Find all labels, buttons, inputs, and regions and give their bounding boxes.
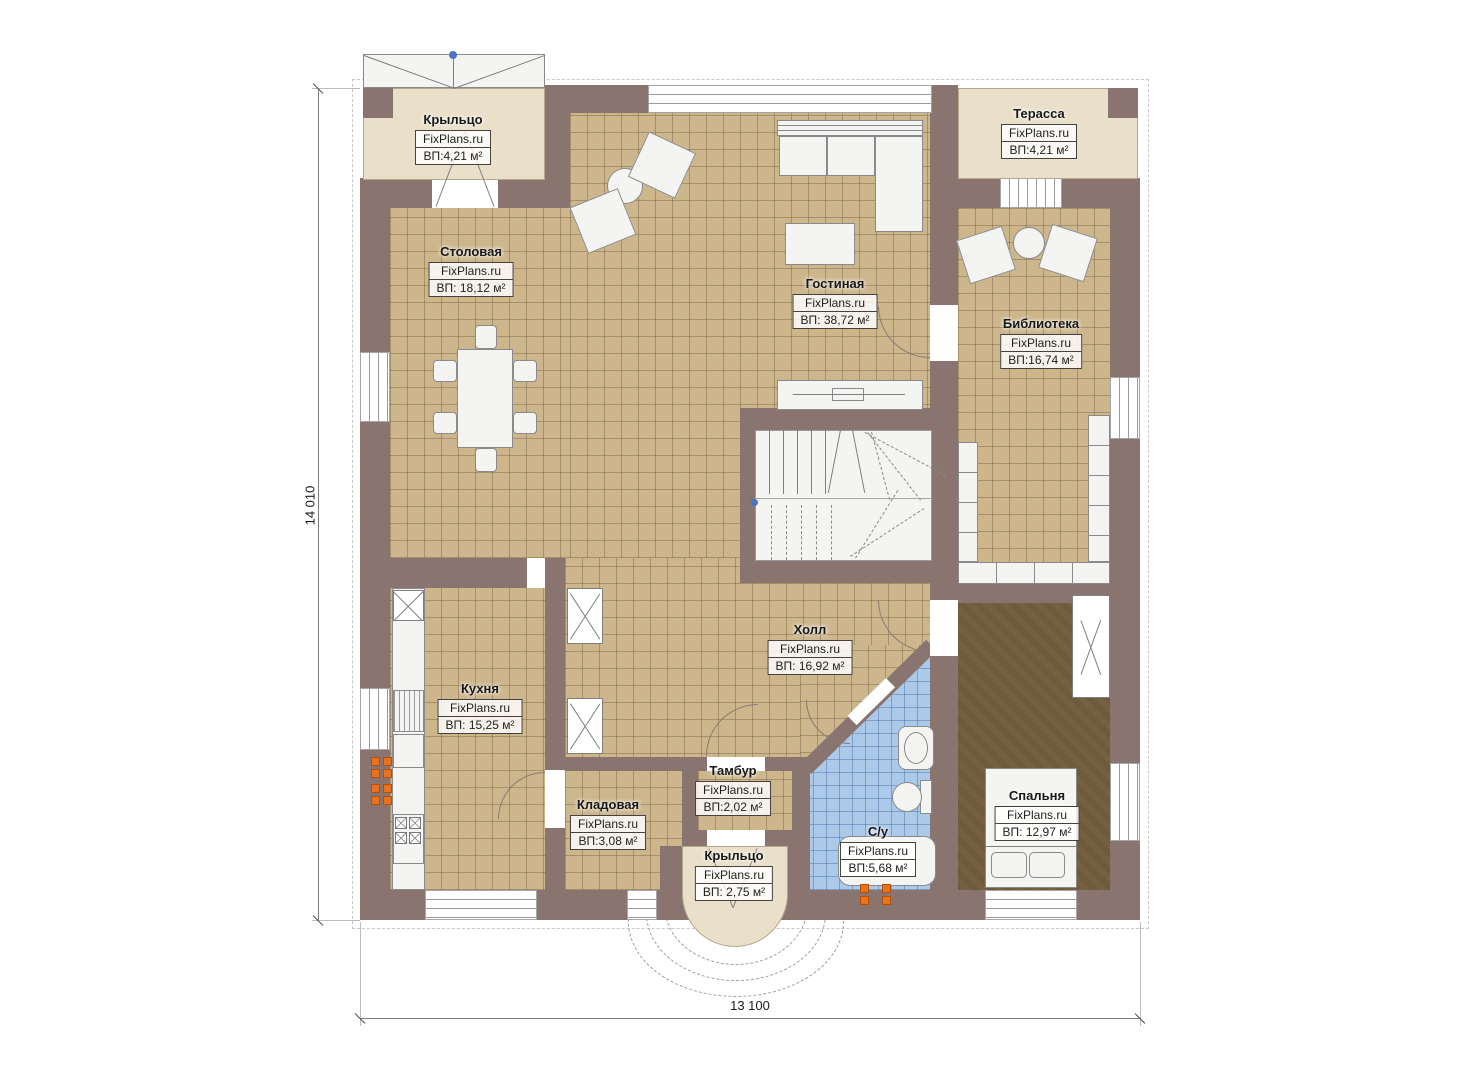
radiator-dot — [383, 757, 392, 766]
watermark: FixPlans.ru — [430, 263, 513, 279]
room-name: Спальня — [1009, 788, 1065, 803]
opening-dining-kitchen — [527, 558, 545, 588]
stove-burner — [395, 817, 407, 829]
round-table — [1013, 227, 1045, 259]
watermark: FixPlans.ru — [996, 807, 1079, 823]
watermark: FixPlans.ru — [769, 641, 852, 657]
room-info-box: FixPlans.ru ВП: 38,72 м² — [793, 294, 878, 329]
stove-burner — [395, 832, 407, 844]
room-label-tambour: Тамбур FixPlans.ru ВП:2,02 м² — [695, 763, 771, 816]
window-kitchen-left — [360, 688, 390, 750]
room-area: ВП:5,68 м² — [841, 859, 915, 876]
sofa-chaise — [875, 136, 923, 232]
bookshelf — [958, 442, 978, 562]
stair-landing — [755, 498, 932, 499]
chair — [433, 360, 457, 382]
door-kitchen-pantry — [545, 770, 565, 828]
radiator-dot — [383, 784, 392, 793]
watermark: FixPlans.ru — [841, 843, 915, 859]
tv — [793, 394, 905, 395]
watermark: FixPlans.ru — [439, 700, 522, 716]
floor-plan-canvas: Крыльцо FixPlans.ru ВП:4,21 м² Столовая … — [0, 0, 1474, 1080]
watermark: FixPlans.ru — [696, 782, 770, 798]
stair-step-dashed — [831, 505, 832, 560]
room-info-box: FixPlans.ru ВП: 2,75 м² — [695, 866, 773, 901]
room-info-box: FixPlans.ru ВП:4,21 м² — [415, 130, 491, 165]
dimension-height-label: 14 010 — [303, 476, 318, 536]
room-name: Терасса — [1013, 106, 1065, 121]
stair-step-dashed — [771, 505, 772, 560]
radiator-dot — [882, 896, 891, 905]
bathroom-sink-bowl — [904, 732, 928, 764]
room-label-living: Гостиная FixPlans.ru ВП: 38,72 м² — [793, 276, 878, 329]
wall-center-divider — [930, 85, 958, 890]
door-tambour-porch — [707, 830, 765, 846]
watermark: FixPlans.ru — [416, 131, 490, 147]
room-label-bedroom: Спальня FixPlans.ru ВП: 12,97 м² — [995, 788, 1080, 841]
wall-dining-kitchen — [390, 558, 527, 588]
sofa-seat — [779, 136, 827, 176]
room-name: Тамбур — [709, 763, 756, 778]
wall-stairs-bottom — [740, 560, 930, 583]
room-name: Столовая — [440, 244, 502, 259]
room-area: ВП:4,21 м² — [1002, 141, 1076, 158]
room-info-box: FixPlans.ru ВП:3,08 м² — [570, 815, 646, 850]
stove-burner — [409, 817, 421, 829]
canopy-marker — [449, 51, 457, 59]
stair-step — [769, 430, 770, 494]
pillow — [1029, 852, 1065, 878]
room-info-box: FixPlans.ru ВП:5,68 м² — [840, 842, 916, 877]
radiator-dot — [383, 769, 392, 778]
room-area: ВП: 15,25 м² — [439, 716, 522, 733]
bed-blanket-line — [986, 846, 1076, 847]
chair — [475, 325, 497, 349]
room-name: Холл — [794, 622, 827, 637]
room-label-porch-top: Крыльцо FixPlans.ru ВП:4,21 м² — [415, 112, 491, 165]
room-area: ВП: 38,72 м² — [794, 311, 877, 328]
room-label-library: Библиотека FixPlans.ru ВП:16,74 м² — [1000, 316, 1082, 369]
room-info-box: FixPlans.ru ВП: 18,12 м² — [429, 262, 514, 297]
wall-terrace-post — [1108, 88, 1138, 118]
room-name: С/у — [868, 824, 888, 839]
window-bedroom-right — [1110, 763, 1140, 841]
stair-step — [825, 430, 826, 494]
room-label-terrace: Терасса FixPlans.ru ВП:4,21 м² — [1001, 106, 1077, 159]
room-label-hall: Холл FixPlans.ru ВП: 16,92 м² — [768, 622, 853, 675]
window-dining-left — [360, 352, 390, 422]
watermark: FixPlans.ru — [794, 295, 877, 311]
radiator-dot — [860, 884, 869, 893]
dimension-line-vertical — [318, 88, 319, 920]
room-info-box: FixPlans.ru ВП: 16,92 м² — [768, 640, 853, 675]
stove-burner — [409, 832, 421, 844]
room-info-box: FixPlans.ru ВП:16,74 м² — [1000, 334, 1082, 369]
room-label-dining: Столовая FixPlans.ru ВП: 18,12 м² — [429, 244, 514, 297]
wall-porch-flank-right — [788, 846, 810, 920]
stair-step — [811, 430, 812, 494]
watermark: FixPlans.ru — [1001, 335, 1081, 351]
chair — [513, 412, 537, 434]
bookshelf — [1088, 415, 1110, 562]
room-name: Кухня — [461, 681, 499, 696]
watermark: FixPlans.ru — [696, 867, 772, 883]
staircase — [755, 430, 932, 561]
sofa-back — [777, 120, 923, 136]
room-label-bathroom: С/у FixPlans.ru ВП:5,68 м² — [840, 824, 916, 877]
room-label-porch-bottom: Крыльцо FixPlans.ru ВП: 2,75 м² — [695, 848, 773, 901]
sofa-seat — [827, 136, 875, 176]
wall-kitchen-hall — [545, 558, 565, 890]
room-area: ВП: 2,75 м² — [696, 883, 772, 900]
radiator-dot — [371, 757, 380, 766]
room-area: ВП:3,08 м² — [571, 832, 645, 849]
room-info-box: FixPlans.ru ВП:4,21 м² — [1001, 124, 1077, 159]
fridge — [393, 590, 424, 621]
room-name: Крыльцо — [704, 848, 763, 863]
wall-porch-flank-left — [660, 846, 682, 920]
stair-step-dashed — [801, 505, 802, 560]
room-name: Гостиная — [806, 276, 865, 291]
chair — [513, 360, 537, 382]
dining-table — [457, 349, 513, 448]
radiator-dot — [371, 796, 380, 805]
watermark: FixPlans.ru — [1002, 125, 1076, 141]
room-info-box: FixPlans.ru ВП: 15,25 м² — [438, 699, 523, 734]
room-area: ВП:4,21 м² — [416, 147, 490, 164]
window-kitchen-bottom — [425, 890, 537, 920]
pillow — [991, 852, 1027, 878]
radiator-dot — [383, 796, 392, 805]
radiator-dot — [860, 896, 869, 905]
vent-shaft — [567, 588, 603, 644]
extension-line — [1140, 922, 1141, 1026]
radiator-dot — [371, 769, 380, 778]
door-terrace — [1000, 178, 1062, 208]
canopy-line — [453, 55, 454, 88]
dishwasher — [393, 734, 424, 768]
dimension-line-horizontal — [360, 1018, 1140, 1019]
bookshelf — [958, 562, 1110, 584]
wardrobe — [1072, 595, 1110, 698]
wall-porch-post — [363, 88, 393, 118]
kitchen-sink — [393, 690, 424, 732]
room-name: Библиотека — [1003, 316, 1079, 331]
dimension-width-label: 13 100 — [710, 998, 790, 1013]
stair-step — [797, 430, 798, 494]
door-bedroom — [930, 600, 958, 656]
room-info-box: FixPlans.ru ВП: 12,97 м² — [995, 806, 1080, 841]
room-area: ВП: 12,97 м² — [996, 823, 1079, 840]
window-library-right — [1110, 377, 1140, 439]
stair-step-dashed — [786, 505, 787, 560]
wall-stairs-top — [740, 408, 930, 430]
porch-canopy — [363, 54, 545, 88]
stair-step-dashed — [816, 505, 817, 560]
wall-left — [360, 178, 390, 920]
room-label-kitchen: Кухня FixPlans.ru ВП: 15,25 м² — [438, 681, 523, 734]
coffee-table — [785, 223, 855, 265]
room-name: Кладовая — [577, 797, 639, 812]
radiator-dot — [882, 884, 891, 893]
door-library — [930, 305, 958, 361]
room-name: Крыльцо — [423, 112, 482, 127]
wall-bedroom-top — [955, 583, 1140, 603]
room-area: ВП:16,74 м² — [1001, 351, 1081, 368]
vent-shaft — [567, 698, 603, 754]
chair — [475, 448, 497, 472]
window-pantry-bottom — [627, 890, 657, 920]
room-label-pantry: Кладовая FixPlans.ru ВП:3,08 м² — [570, 797, 646, 850]
window-bedroom-bottom — [985, 890, 1077, 920]
extension-line — [360, 922, 361, 1026]
room-info-box: FixPlans.ru ВП:2,02 м² — [695, 781, 771, 816]
watermark: FixPlans.ru — [571, 816, 645, 832]
chair — [433, 412, 457, 434]
wall-top — [542, 85, 648, 113]
room-area: ВП: 16,92 м² — [769, 657, 852, 674]
room-area: ВП: 18,12 м² — [430, 279, 513, 296]
stair-step — [783, 430, 784, 494]
stair-marker — [751, 499, 758, 506]
radiator-dot — [371, 784, 380, 793]
toilet-bowl — [892, 782, 922, 812]
window-living-top — [648, 85, 932, 113]
room-area: ВП:2,02 м² — [696, 798, 770, 815]
